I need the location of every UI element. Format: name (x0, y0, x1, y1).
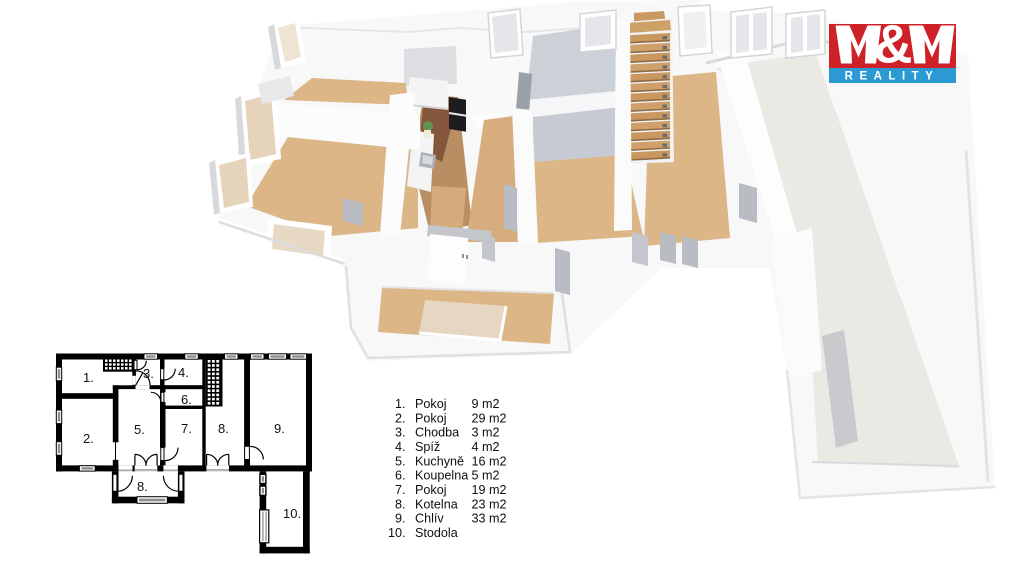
svg-text:5 m2: 5 m2 (472, 469, 500, 483)
svg-text:3.: 3. (395, 426, 406, 440)
svg-text:3 m2: 3 m2 (472, 426, 500, 440)
svg-text:5.: 5. (134, 422, 145, 437)
svg-text:7.: 7. (395, 483, 406, 497)
svg-text:5.: 5. (395, 454, 406, 468)
svg-text:Pokoj: Pokoj (415, 411, 447, 425)
svg-text:Chlív: Chlív (415, 512, 444, 526)
svg-text:Pokoj: Pokoj (415, 397, 447, 411)
svg-text:Koupelna: Koupelna (415, 469, 468, 483)
svg-text:1.: 1. (83, 370, 94, 385)
svg-text:16 m2: 16 m2 (472, 454, 507, 468)
svg-text:6.: 6. (181, 392, 192, 407)
svg-text:Kuchyně: Kuchyně (415, 454, 464, 468)
svg-text:4.: 4. (395, 440, 406, 454)
svg-text:4.: 4. (178, 365, 189, 380)
svg-text:10.: 10. (388, 526, 406, 540)
svg-text:7.: 7. (181, 421, 192, 436)
svg-text:Pokoj: Pokoj (415, 483, 447, 497)
svg-text:19 m2: 19 m2 (472, 483, 507, 497)
svg-text:29 m2: 29 m2 (472, 411, 507, 425)
svg-text:3.: 3. (143, 366, 154, 381)
svg-text:8.: 8. (395, 497, 406, 511)
svg-text:33 m2: 33 m2 (472, 512, 507, 526)
svg-text:Spíž: Spíž (415, 440, 440, 454)
svg-text:2.: 2. (395, 411, 406, 425)
svg-text:8.: 8. (218, 421, 229, 436)
svg-text:9 m2: 9 m2 (472, 397, 500, 411)
svg-text:4 m2: 4 m2 (472, 440, 500, 454)
svg-text:Chodba: Chodba (415, 426, 459, 440)
svg-text:Kotelna: Kotelna (415, 497, 458, 511)
svg-text:6.: 6. (395, 469, 406, 483)
svg-text:9.: 9. (395, 512, 406, 526)
svg-text:REALITY: REALITY (845, 71, 940, 83)
svg-text:2.: 2. (83, 431, 94, 446)
svg-text:23 m2: 23 m2 (472, 497, 507, 511)
svg-text:8.: 8. (137, 479, 148, 494)
svg-text:9.: 9. (274, 421, 285, 436)
svg-text:10.: 10. (283, 506, 301, 521)
svg-text:Stodola: Stodola (415, 526, 458, 540)
svg-text:1.: 1. (395, 397, 406, 411)
svg-text:&: & (874, 15, 913, 75)
